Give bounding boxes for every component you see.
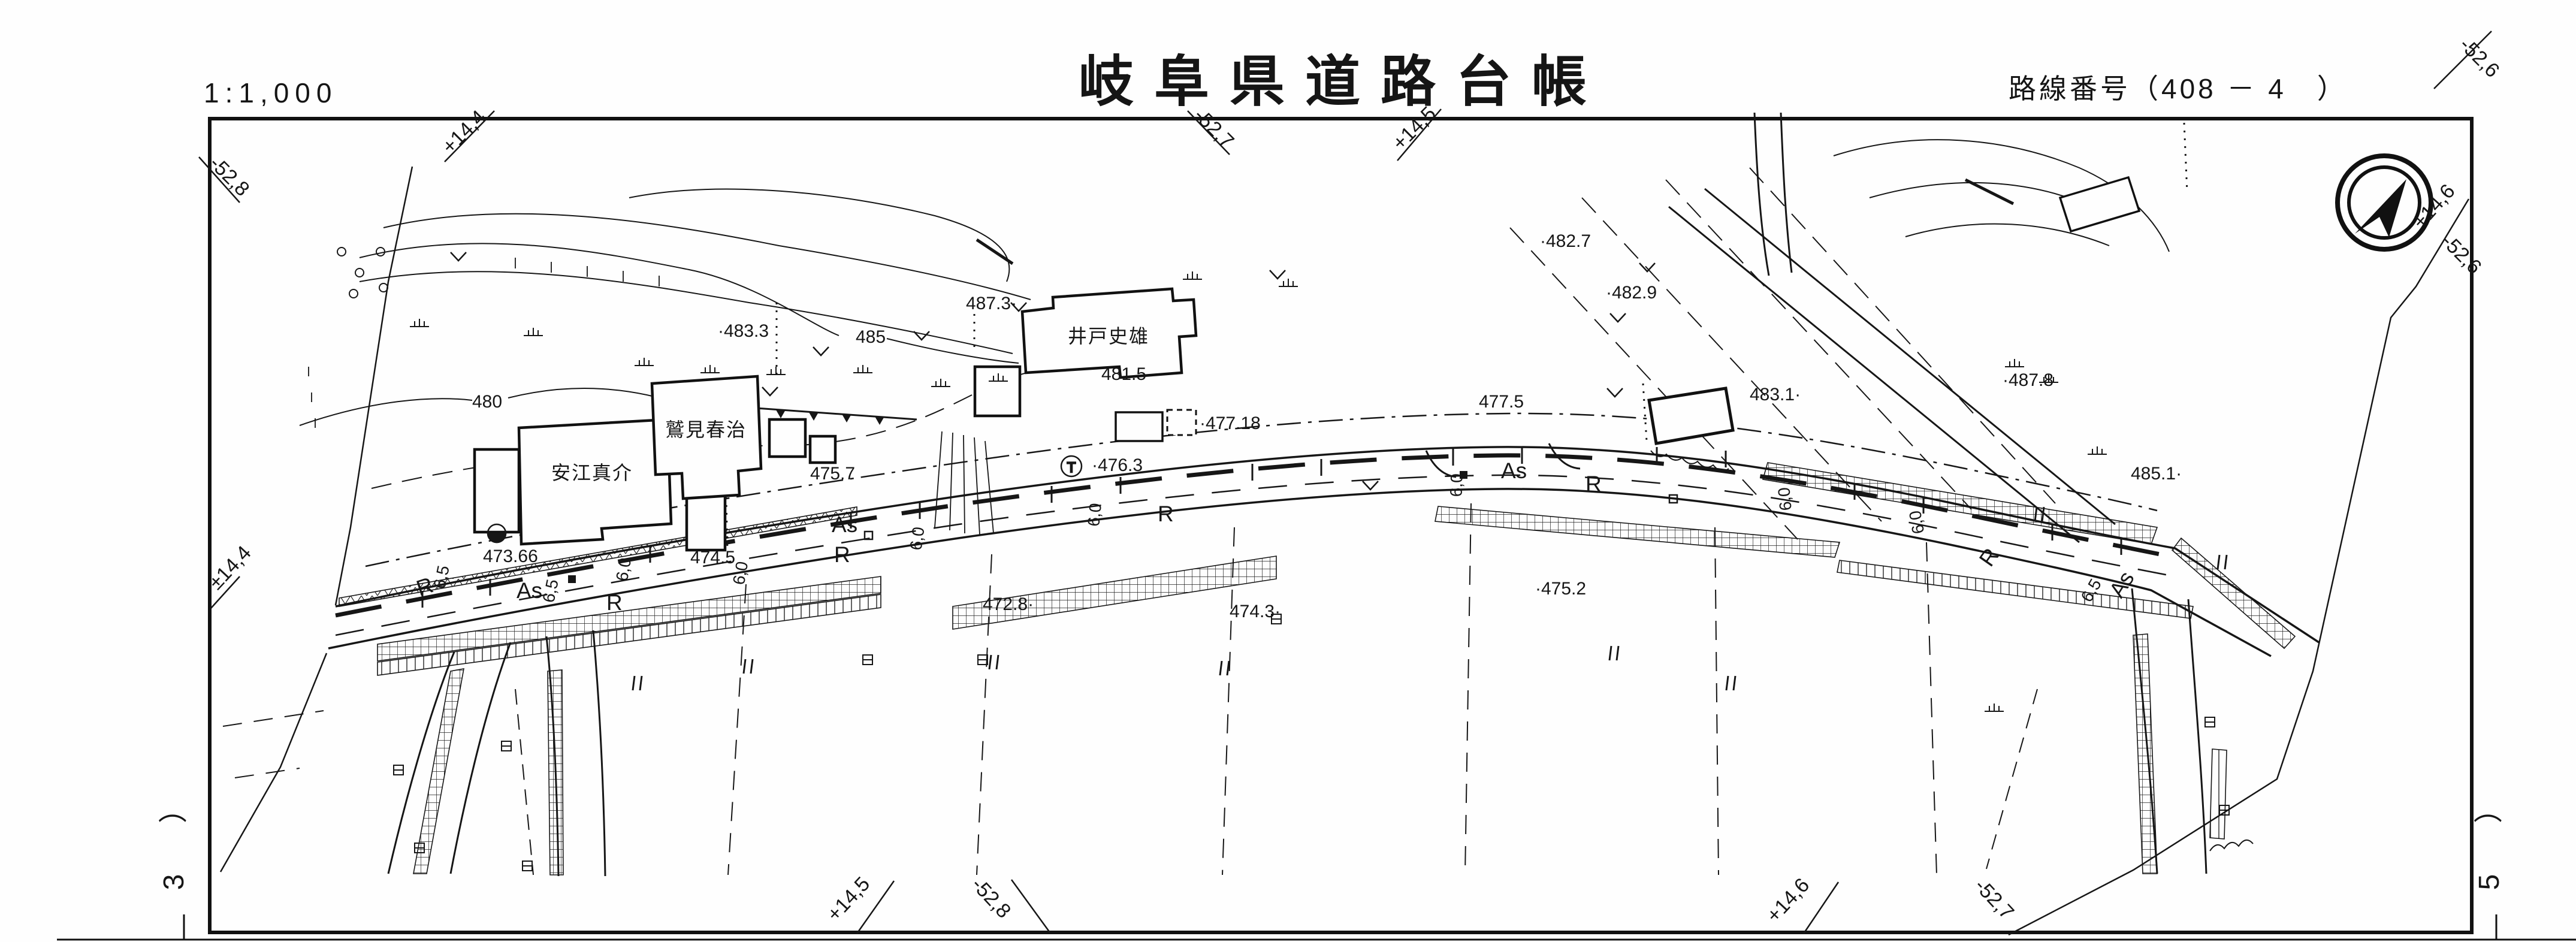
owner-name-label: 井戸史雄 — [1068, 325, 1149, 347]
surface-label: As — [832, 512, 857, 537]
gutter-label: R — [1974, 544, 2004, 570]
north-arrow-icon — [2338, 156, 2431, 249]
surface-label: As — [1501, 458, 1527, 483]
edge-label: -52,7 — [1970, 874, 2019, 924]
left-sheet-number: 3 — [158, 874, 190, 890]
elevation-label: ·475.2 — [1535, 579, 1586, 599]
building-outline — [2060, 177, 2139, 231]
elevation-label: 473.66 — [483, 547, 538, 566]
edge-label: -52,6 — [2437, 230, 2486, 279]
elevation-label: 485 — [856, 327, 886, 347]
elevation-label: 483.1· — [1750, 385, 1801, 404]
elevation-label: ·476.3 — [1092, 455, 1143, 475]
edge-label: -52,7 — [1189, 104, 1239, 153]
building-outline — [475, 449, 519, 532]
owner-name-label: 安江真介 — [551, 462, 633, 484]
elevation-label: 477.5 — [1479, 392, 1524, 412]
elevation-label: 474.5 — [690, 548, 735, 567]
scallop-line — [2210, 840, 2253, 851]
gutter-label: R — [606, 590, 623, 615]
edge-label: -52,8 — [205, 152, 254, 201]
edge-label: +14,5 — [1388, 102, 1440, 155]
elevation-label: ·482.7 — [1540, 231, 1591, 251]
gutter-label: R — [1586, 472, 1602, 496]
elevation-label: ·482.9 — [1606, 283, 1657, 303]
elevation-label: 475.7 — [810, 464, 855, 484]
edge-label: +14,5 — [823, 872, 874, 926]
elevation-label: 481.5 — [1101, 364, 1146, 384]
building-outline-dashed — [1167, 410, 1196, 435]
width-label: 6,0 — [729, 560, 751, 586]
elevation-label: 472.8· — [983, 594, 1034, 614]
building-outline — [1116, 412, 1162, 441]
surface-label: As — [517, 578, 542, 603]
width-label: 6,0 — [1905, 509, 1928, 536]
right-sheet-paren: ） — [2474, 795, 2505, 823]
width-label: 6,0 — [1084, 502, 1105, 527]
right-sheet-number: 5 — [2474, 874, 2505, 890]
elevation-label: 480 — [472, 392, 502, 412]
gutter-label: R — [834, 542, 850, 567]
edge-label: +14,6 — [1762, 874, 1814, 927]
building-outline — [1649, 388, 1733, 443]
gutter-label: R — [1158, 502, 1174, 526]
utility-pole-icon: T — [1061, 456, 1082, 476]
building-outline — [769, 419, 805, 457]
elevation-label: ·477.18 — [1200, 413, 1261, 433]
building-outline — [975, 367, 1020, 416]
width-label: 6,0 — [907, 526, 928, 551]
edge-label: +14,4 — [437, 105, 490, 158]
elevation-label: ·487.8 — [2003, 370, 2053, 390]
road-ledger-map: -52,8 +14,4 -52,7 +14,5 -52,6 +14,6 -52,… — [0, 0, 2576, 942]
map-symbols: T — [394, 252, 2229, 871]
tree-circles — [337, 247, 388, 298]
width-label: 6,0 — [1774, 487, 1795, 511]
left-sheet-paren: ） — [158, 795, 190, 823]
parcel-boundaries — [223, 503, 1937, 875]
edge-label: -52,6 — [2455, 33, 2504, 82]
owner-name-label: 鷲見春治 — [665, 419, 747, 440]
elevation-label: 487.3· — [966, 294, 1017, 313]
elevation-label: ·483.3 — [718, 321, 769, 341]
width-label: 6,5 — [539, 578, 561, 605]
utility-pole-letter: T — [1067, 460, 1076, 476]
elevation-label: 485.1· — [2131, 464, 2182, 484]
building-outline — [810, 436, 835, 463]
edge-label: -52,8 — [967, 873, 1016, 923]
